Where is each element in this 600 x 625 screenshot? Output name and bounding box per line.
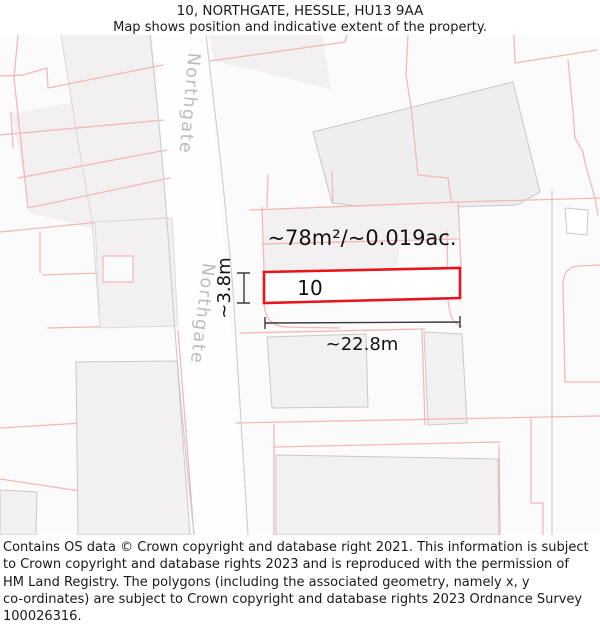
depth-label: ~3.8m <box>214 257 235 318</box>
building <box>276 455 499 535</box>
property-outline <box>264 268 460 303</box>
property-number: 10 <box>297 276 322 300</box>
page-title: 10, NORTHGATE, HESSLE, HU13 9AA <box>0 3 600 20</box>
building <box>76 361 190 535</box>
area-label: ~78m²/~0.019ac. <box>267 226 456 250</box>
copyright-text: Contains OS data © Crown copyright and d… <box>3 539 597 625</box>
parcel-rounded <box>563 265 600 382</box>
parcel-notch <box>103 256 133 282</box>
property-map-page: 10, NORTHGATE, HESSLE, HU13 9AA Map show… <box>0 0 600 625</box>
parcel-line <box>236 416 600 423</box>
building <box>313 82 540 213</box>
width-label: ~22.8m <box>326 334 399 355</box>
building <box>214 35 331 89</box>
page-header: 10, NORTHGATE, HESSLE, HU13 9AA Map show… <box>0 3 600 36</box>
building <box>0 490 37 535</box>
building <box>424 332 467 425</box>
building <box>565 208 588 235</box>
property-plot: 10 <box>264 268 460 303</box>
map-svg: 10 Northgate Northgate ~78m²/~0.019ac. <box>0 35 600 535</box>
depth-measure <box>237 273 250 303</box>
map-canvas: 10 Northgate Northgate ~78m²/~0.019ac. <box>0 35 600 535</box>
page-subtitle: Map shows position and indicative extent… <box>0 20 600 37</box>
